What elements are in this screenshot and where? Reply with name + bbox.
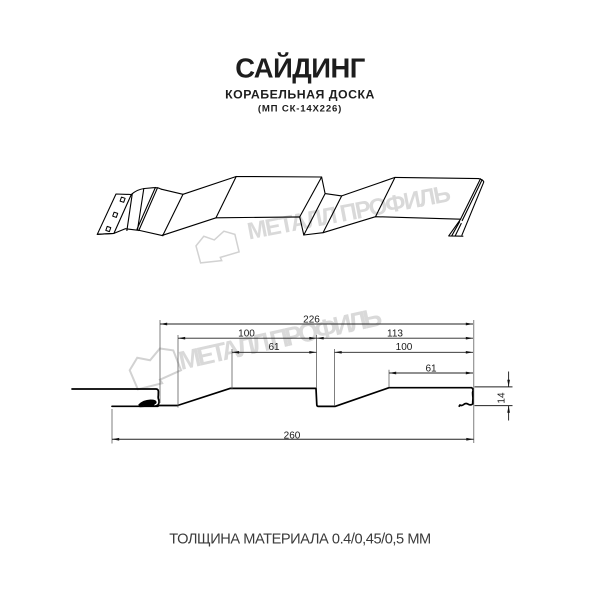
svg-text:113: 113: [387, 329, 403, 340]
svg-text:61: 61: [425, 363, 437, 374]
svg-text:МЕТАЛЛ ПРОФИЛЬ: МЕТАЛЛ ПРОФИЛЬ: [176, 302, 384, 376]
svg-text:(МП СК-14Х226): (МП СК-14Х226): [258, 103, 342, 114]
svg-text:100: 100: [396, 342, 413, 353]
svg-text:100: 100: [238, 329, 255, 340]
svg-text:САЙДИНГ: САЙДИНГ: [235, 51, 365, 83]
svg-text:260: 260: [284, 430, 301, 441]
svg-text:61: 61: [268, 342, 280, 353]
svg-text:МЕТАЛЛ ПРОФИЛЬ: МЕТАЛЛ ПРОФИЛЬ: [245, 180, 453, 245]
svg-text:КОРАБЕЛЬНАЯ ДОСКА: КОРАБЕЛЬНАЯ ДОСКА: [225, 88, 375, 102]
svg-text:14: 14: [497, 392, 508, 404]
svg-text:ТОЛЩИНА МАТЕРИАЛА 0.4/0,45/0,5: ТОЛЩИНА МАТЕРИАЛА 0.4/0,45/0,5 ММ: [169, 532, 431, 548]
svg-text:226: 226: [303, 314, 320, 325]
